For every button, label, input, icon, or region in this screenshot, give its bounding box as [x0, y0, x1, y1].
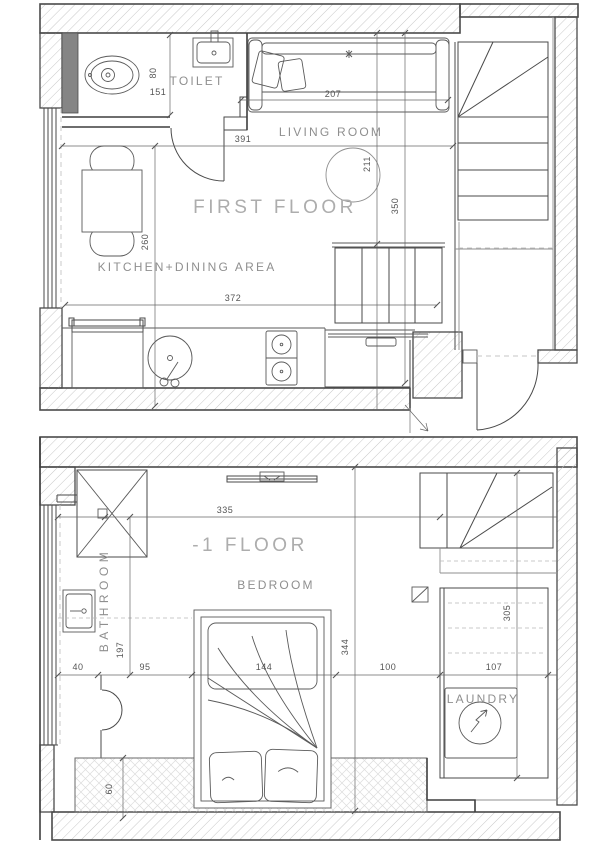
dim-372: 372 [225, 293, 242, 303]
dim-100: 100 [380, 662, 397, 672]
floorplan-sheet: 80 151 TOILET 207 [0, 0, 600, 848]
first-floor-title: FIRST FLOOR [193, 197, 357, 218]
bed-icon [194, 610, 331, 808]
kitchen-sink-icon [148, 336, 192, 387]
kitchen-cabinet [72, 332, 143, 388]
dim-260: 260 [140, 234, 150, 251]
first-floor-stairs [455, 42, 553, 249]
dim-391: 391 [235, 134, 252, 144]
dim-60: 60 [104, 783, 114, 794]
dim-95: 95 [139, 662, 150, 672]
kitchen-dining-area: 260 372 KITCHEN+DINING AREA [62, 143, 440, 409]
dim-344: 344 [340, 639, 350, 656]
first-floor-plan: 80 151 TOILET 207 [40, 4, 578, 433]
living-room-label: LIVING ROOM [279, 125, 383, 139]
dim-207: 207 [325, 89, 342, 99]
dim-211: 211 [362, 156, 372, 172]
bathroom-door [101, 675, 122, 758]
dim-40: 40 [72, 662, 83, 672]
bathroom-sink-icon [63, 590, 95, 632]
toilet-sink-icon [193, 31, 233, 67]
dim-144: 144 [256, 662, 273, 672]
entry-arrow-icon [405, 405, 428, 431]
ceiling-lamp-icon [345, 50, 353, 58]
floor-plan-drawing: 80 151 TOILET 207 [0, 0, 600, 848]
stove-icon [266, 331, 297, 385]
toilet-fixture-icon [85, 56, 139, 94]
dim-305: 305 [502, 605, 512, 622]
lower-left-window [40, 505, 60, 745]
bathroom-area: BATHROOM [57, 470, 147, 758]
laundry-label: LAUNDRY [447, 692, 520, 706]
lower-floor-title: -1 FLOOR [192, 535, 308, 556]
dim-107: 107 [486, 662, 503, 672]
entry-door [477, 363, 538, 430]
wardrobe-icon [332, 243, 445, 323]
dining-table-icon [82, 146, 142, 256]
dim-151: 151 [150, 87, 167, 97]
bedroom-window [227, 472, 317, 482]
bathroom-label: BATHROOM [97, 548, 111, 652]
laundry-area: LAUNDRY [412, 587, 548, 778]
dim-350: 350 [390, 198, 400, 215]
toilet-door [171, 128, 224, 181]
toilet-label: TOILET [170, 74, 225, 88]
dim-80: 80 [148, 67, 158, 78]
sofa-icon [248, 38, 449, 112]
first-floor-left-window [40, 108, 61, 308]
kitchen-window [69, 318, 145, 332]
bedroom-label: BEDROOM [237, 578, 314, 592]
lower-floor-plan: BATHROOM [40, 437, 577, 840]
dim-197: 197 [115, 642, 125, 659]
kitchen-label: KITCHEN+DINING AREA [98, 260, 277, 274]
dim-335: 335 [217, 505, 234, 515]
lower-floor-stairs [420, 473, 557, 573]
